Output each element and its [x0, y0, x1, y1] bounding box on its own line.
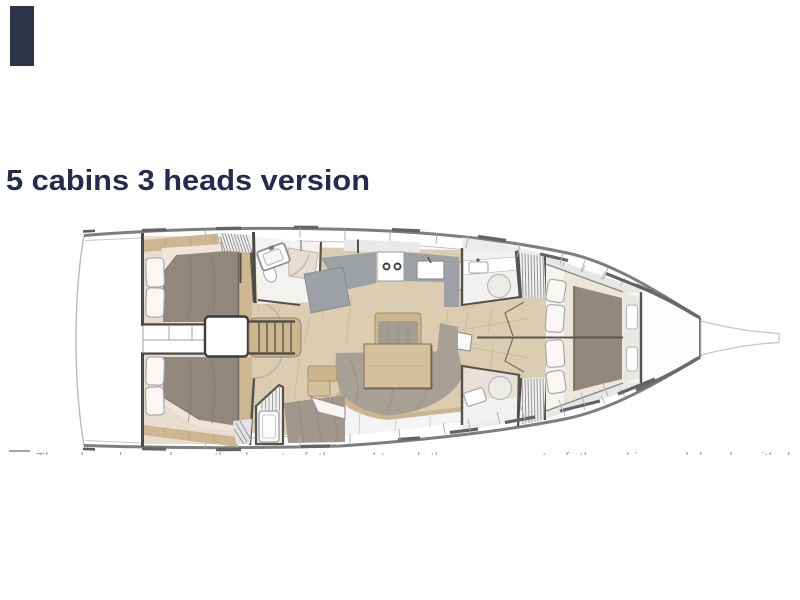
svg-text:5 cabins 3 heads version: 5 cabins 3 heads version — [6, 165, 370, 197]
